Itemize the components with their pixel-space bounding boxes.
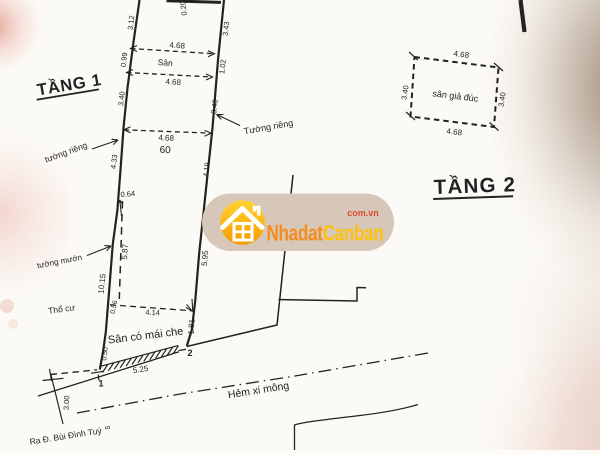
svg-text:4.19: 4.19 — [201, 162, 212, 178]
svg-text:5.95: 5.95 — [200, 250, 210, 267]
svg-text:2: 2 — [187, 348, 192, 358]
svg-text:0.64: 0.64 — [120, 189, 135, 199]
svg-text:60: 60 — [159, 145, 171, 157]
svg-text:3.00: 3.00 — [62, 395, 72, 410]
svg-text:4.68: 4.68 — [158, 133, 175, 143]
svg-text:1.81: 1.81 — [186, 318, 196, 335]
svg-text:com.vn: com.vn — [347, 208, 379, 218]
svg-text:3.43: 3.43 — [221, 21, 232, 37]
svg-text:0.99: 0.99 — [119, 52, 129, 67]
svg-text:4.68: 4.68 — [169, 40, 186, 50]
svg-text:4.33: 4.33 — [109, 154, 120, 170]
svg-text:3.40: 3.40 — [209, 99, 220, 115]
svg-text:3.40: 3.40 — [116, 91, 127, 107]
svg-text:1: 1 — [98, 379, 103, 389]
svg-text:1.02: 1.02 — [217, 59, 227, 74]
svg-text:4.68: 4.68 — [165, 77, 182, 87]
svg-text:5.87: 5.87 — [120, 243, 130, 260]
svg-text:0.20: 0.20 — [178, 1, 189, 17]
svg-text:4.14: 4.14 — [145, 308, 160, 318]
svg-text:Sân: Sân — [157, 57, 173, 68]
svg-text:NhadatCanban: NhadatCanban — [267, 221, 384, 246]
svg-text:3.12: 3.12 — [126, 15, 137, 31]
svg-text:0.50: 0.50 — [101, 347, 109, 361]
svg-text:TẦNG 2: TẦNG 2 — [433, 173, 516, 199]
